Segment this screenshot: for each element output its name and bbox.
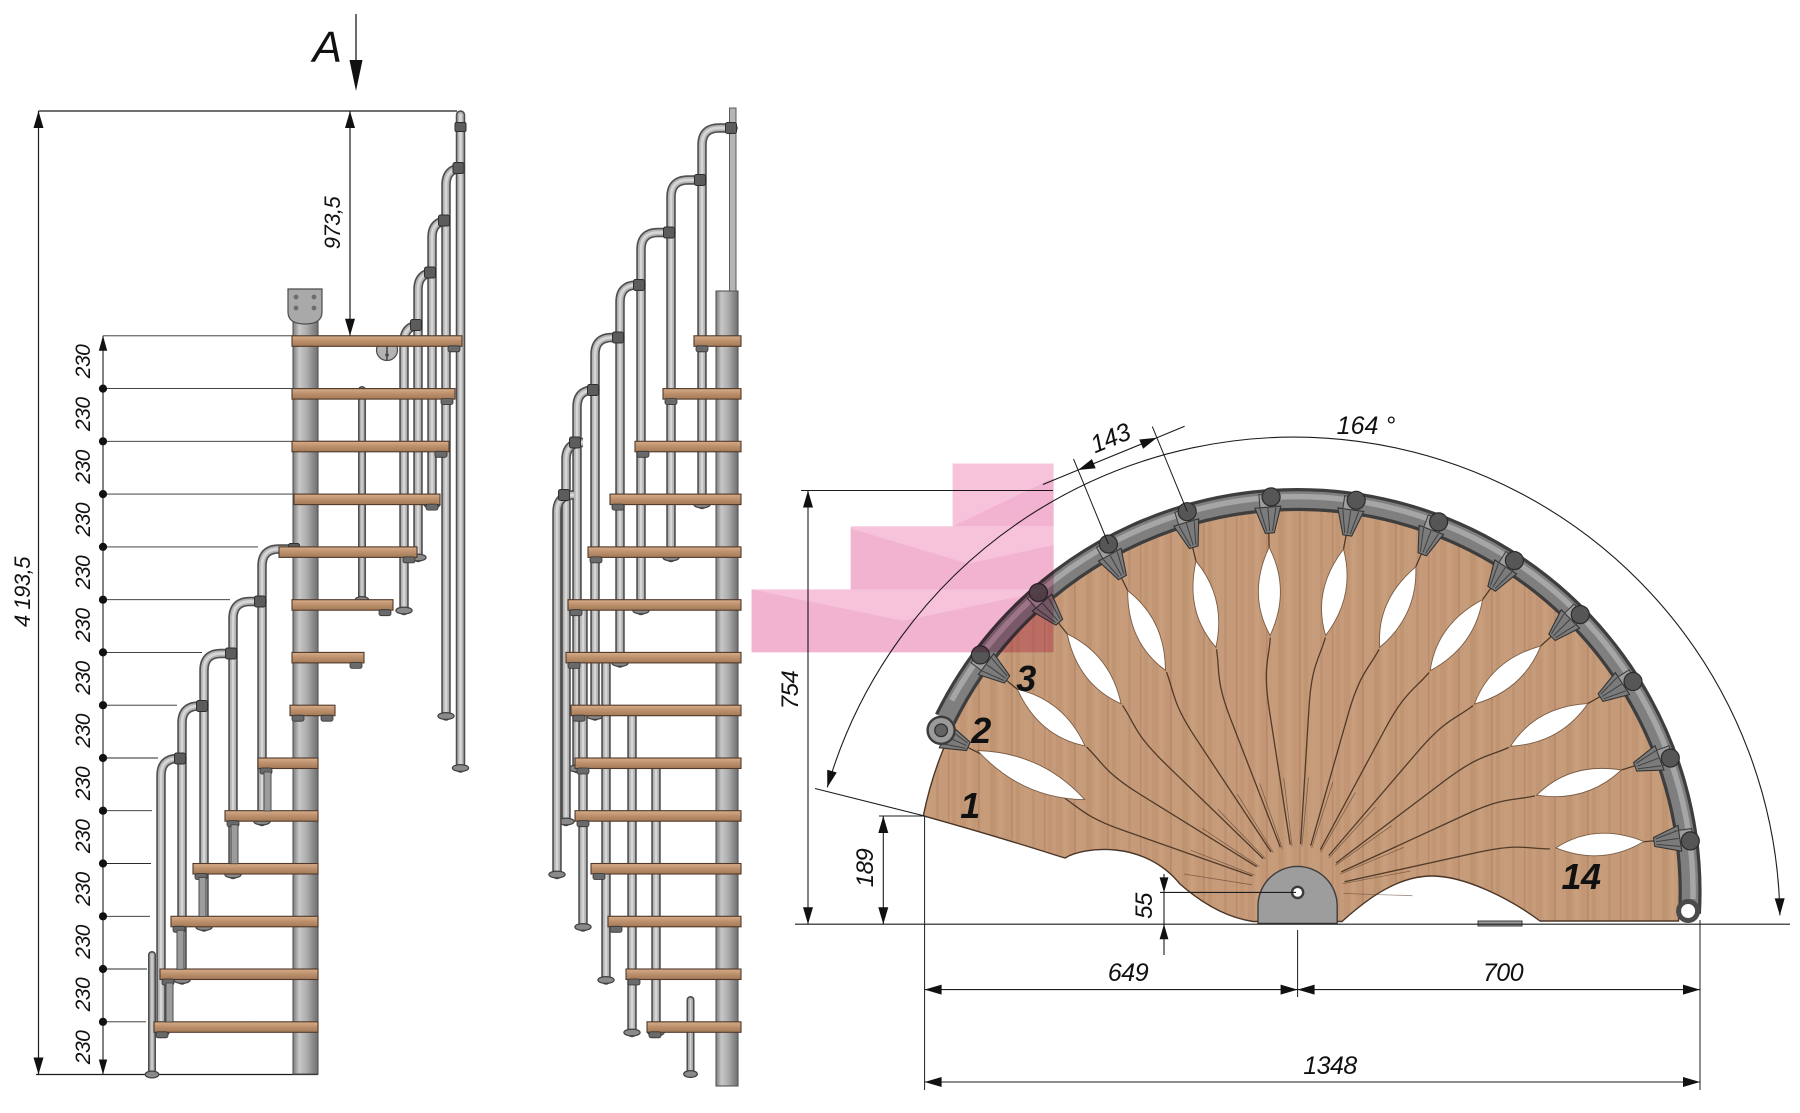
svg-text:700: 700 xyxy=(1483,959,1524,987)
svg-text:230: 230 xyxy=(72,449,95,484)
svg-text:230: 230 xyxy=(72,344,95,379)
svg-text:230: 230 xyxy=(72,766,95,801)
svg-text:2: 2 xyxy=(970,710,991,751)
svg-text:55: 55 xyxy=(1131,892,1158,919)
svg-text:754: 754 xyxy=(777,671,804,710)
svg-text:1: 1 xyxy=(960,785,980,826)
svg-text:230: 230 xyxy=(72,608,95,643)
svg-text:230: 230 xyxy=(72,713,95,748)
svg-text:3: 3 xyxy=(1016,658,1036,699)
svg-text:189: 189 xyxy=(852,849,879,888)
svg-text:230: 230 xyxy=(72,872,95,907)
svg-text:164 °: 164 ° xyxy=(1337,412,1396,440)
svg-text:230: 230 xyxy=(72,977,95,1012)
svg-text:230: 230 xyxy=(72,660,95,695)
svg-text:1348: 1348 xyxy=(1303,1052,1357,1080)
svg-text:A: A xyxy=(310,23,342,72)
svg-text:649: 649 xyxy=(1108,959,1149,987)
svg-text:230: 230 xyxy=(72,924,95,959)
svg-text:230: 230 xyxy=(72,1030,95,1065)
svg-text:230: 230 xyxy=(72,502,95,537)
svg-text:14: 14 xyxy=(1561,856,1601,897)
svg-text:230: 230 xyxy=(72,819,95,854)
svg-text:4 193,5: 4 193,5 xyxy=(10,556,35,627)
svg-text:973,5: 973,5 xyxy=(320,195,345,249)
svg-text:230: 230 xyxy=(72,555,95,590)
svg-text:230: 230 xyxy=(72,397,95,432)
